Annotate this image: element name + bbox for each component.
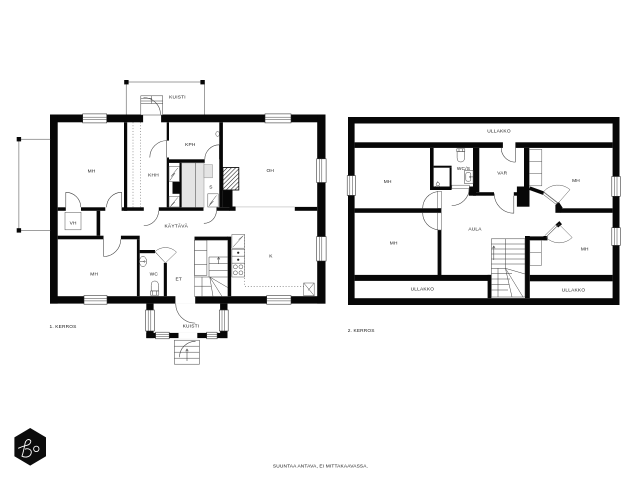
- svg-text:ET: ET: [176, 277, 183, 283]
- svg-text:WC/S: WC/S: [457, 166, 470, 172]
- svg-text:MH: MH: [581, 247, 589, 253]
- svg-text:KUISTI: KUISTI: [169, 94, 186, 100]
- svg-text:MH: MH: [90, 271, 98, 277]
- svg-text:MH: MH: [390, 240, 398, 246]
- svg-text:AULA: AULA: [468, 226, 482, 232]
- svg-text:2. KERROS: 2. KERROS: [348, 328, 375, 334]
- svg-text:KUISTI: KUISTI: [183, 323, 200, 329]
- svg-text:K: K: [269, 254, 273, 260]
- svg-text:VAR: VAR: [497, 170, 507, 176]
- svg-text:ULLAKKO: ULLAKKO: [411, 287, 435, 293]
- svg-text:ULLAKKO: ULLAKKO: [487, 128, 511, 134]
- svg-text:ULLAKKO: ULLAKKO: [562, 287, 586, 293]
- svg-text:OH: OH: [266, 168, 274, 174]
- svg-text:KHH: KHH: [148, 173, 159, 179]
- svg-text:KÄYTÄVÄ: KÄYTÄVÄ: [165, 223, 189, 230]
- svg-text:S: S: [209, 185, 212, 191]
- svg-text:WC: WC: [150, 272, 159, 278]
- svg-text:KPH: KPH: [185, 142, 196, 148]
- svg-text:SUUNTAA ANTAVA, EI MITTAKAAVAS: SUUNTAA ANTAVA, EI MITTAKAAVASSA.: [273, 463, 368, 469]
- svg-text:1. KERROS: 1. KERROS: [50, 324, 77, 330]
- svg-text:MH: MH: [572, 178, 580, 184]
- svg-text:VH: VH: [70, 220, 77, 226]
- svg-text:MH: MH: [384, 179, 392, 185]
- svg-text:MH: MH: [88, 169, 96, 175]
